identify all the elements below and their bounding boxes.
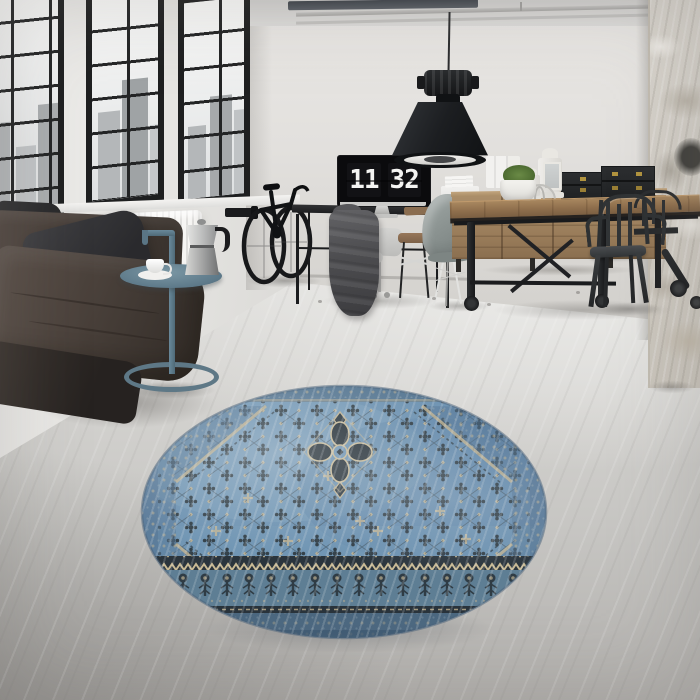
chair-slat bbox=[628, 202, 632, 246]
window-1 bbox=[0, 0, 64, 228]
rug-art bbox=[128, 378, 560, 650]
chair-slat bbox=[617, 204, 621, 248]
desk-leg bbox=[296, 214, 299, 304]
bicycle bbox=[225, 168, 333, 292]
lantern-dome bbox=[542, 148, 558, 158]
bike-handlebar bbox=[295, 187, 308, 191]
office-chair-partial bbox=[660, 240, 700, 312]
brass-latch bbox=[580, 177, 586, 181]
lamp-cap bbox=[424, 70, 472, 96]
moka-top bbox=[186, 225, 218, 247]
window-2 bbox=[86, 0, 164, 208]
floor-anchor-dot bbox=[576, 291, 580, 294]
side-table-stem bbox=[169, 234, 175, 374]
rug-zigzag-band bbox=[128, 556, 560, 570]
chair-leg bbox=[629, 255, 636, 303]
floor-anchor-dot bbox=[318, 300, 322, 303]
potted-plant bbox=[500, 165, 536, 203]
bike-saddle bbox=[263, 183, 281, 191]
lamp-cap-lug bbox=[417, 76, 425, 89]
floor-anchor-dot bbox=[432, 297, 436, 300]
moka-handle bbox=[215, 227, 230, 252]
table-caster bbox=[464, 296, 479, 311]
trunk-seam bbox=[562, 184, 604, 186]
floor-anchor-dot bbox=[487, 303, 491, 306]
chair-arm bbox=[584, 215, 611, 247]
moka-lid-knob bbox=[197, 219, 206, 225]
desk-leg bbox=[308, 212, 310, 290]
printer-stack bbox=[445, 176, 473, 188]
caster-wheel bbox=[670, 280, 687, 297]
pendant-lamp bbox=[390, 68, 490, 176]
brass-latch bbox=[612, 186, 618, 190]
chair-leg bbox=[636, 253, 649, 303]
window-grid bbox=[0, 0, 58, 221]
chair-leg bbox=[588, 255, 600, 307]
wall-dark-spot bbox=[674, 138, 700, 176]
brass-latch bbox=[612, 172, 618, 176]
metal-chair-1 bbox=[580, 192, 664, 312]
moka-pot bbox=[183, 219, 225, 275]
flip-split-line bbox=[346, 180, 422, 182]
round-rug bbox=[128, 378, 560, 650]
lamp-bulb-core bbox=[424, 156, 456, 163]
jacket-on-desk bbox=[329, 210, 379, 316]
caster-wheel bbox=[384, 292, 390, 298]
trunk-seam bbox=[602, 180, 654, 182]
pipe-hanger bbox=[520, 2, 522, 11]
sideboard-leg bbox=[456, 259, 461, 272]
caster-wheel bbox=[690, 296, 700, 309]
moka-bottom bbox=[185, 248, 219, 275]
side-table-hook-stub bbox=[142, 230, 148, 245]
loft-room-photo: 11 32 bbox=[0, 0, 700, 700]
table-leg-left bbox=[467, 222, 475, 300]
lamp-cap-lug bbox=[471, 76, 479, 89]
brass-latch bbox=[636, 172, 642, 176]
bike-crank bbox=[273, 230, 282, 239]
window-grid bbox=[92, 0, 158, 201]
chair-leg bbox=[603, 257, 609, 307]
